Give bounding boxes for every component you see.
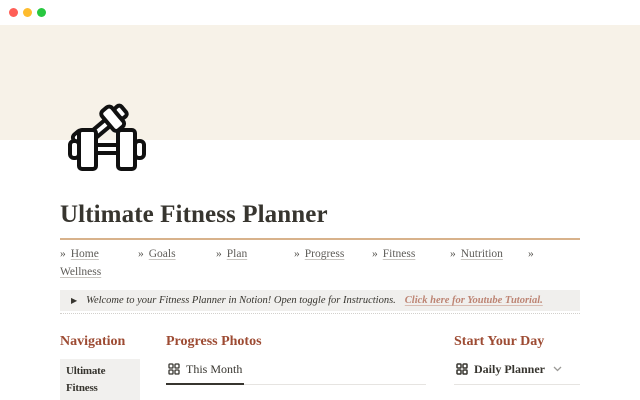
- chevron-right-icon: »: [138, 245, 144, 263]
- view-daily-planner[interactable]: Daily Planner: [454, 359, 564, 384]
- start-your-day-column: Start Your Day Daily Planner: [454, 334, 580, 400]
- progress-photos-heading: Progress Photos: [166, 334, 426, 351]
- minimize-window-button[interactable]: [23, 8, 32, 17]
- nav-link-progress[interactable]: Progress: [305, 245, 345, 263]
- page-title: Ultimate Fitness Planner: [60, 200, 580, 230]
- sidebar-item-ultimate-fitness-planner[interactable]: Ultimate Fitness Planner: [60, 359, 140, 400]
- bottom-columns: Navigation Ultimate Fitness Planner Prog…: [60, 334, 580, 400]
- close-window-button[interactable]: [9, 8, 18, 17]
- nav-item-fitness: » Fitness: [372, 245, 450, 263]
- welcome-callout-wrap: ▶ Welcome to your Fitness Planner in Not…: [60, 290, 580, 314]
- nav-item-goals: » Goals: [138, 245, 216, 263]
- chevron-right-icon: »: [450, 245, 456, 263]
- welcome-text: Welcome to your Fitness Planner in Notio…: [86, 295, 396, 306]
- nav-item-progress: » Progress: [294, 245, 372, 263]
- nav-item-plan: » Plan: [216, 245, 294, 263]
- section-nav: » Home » Goals » Plan » Progress » Fitne…: [60, 245, 580, 281]
- start-your-day-heading: Start Your Day: [454, 334, 580, 351]
- view-daily-planner-label: Daily Planner: [474, 362, 545, 377]
- chevron-right-icon: »: [528, 245, 534, 263]
- nav-link-goals[interactable]: Goals: [149, 245, 176, 263]
- nav-item-home: » Home: [60, 245, 138, 263]
- navigation-heading: Navigation: [60, 334, 140, 351]
- progress-photos-column: Progress Photos This Month: [166, 334, 426, 400]
- chevron-right-icon: »: [216, 245, 222, 263]
- chevron-right-icon: »: [372, 245, 378, 263]
- nav-link-wellness[interactable]: Wellness: [60, 266, 101, 278]
- window-titlebar: [0, 0, 640, 25]
- gallery-view-icon: [168, 363, 180, 375]
- navigation-column: Navigation Ultimate Fitness Planner: [60, 334, 140, 400]
- tab-this-month[interactable]: This Month: [166, 359, 244, 385]
- nav-link-home[interactable]: Home: [71, 245, 99, 263]
- welcome-toggle-callout: ▶ Welcome to your Fitness Planner in Not…: [60, 290, 580, 311]
- youtube-tutorial-link[interactable]: Click here for Youtube Tutorial.: [405, 295, 543, 306]
- tab-this-month-label: This Month: [186, 362, 242, 377]
- nav-link-nutrition[interactable]: Nutrition: [461, 245, 503, 263]
- dumbbells-page-icon[interactable]: [62, 86, 152, 174]
- title-divider: [60, 238, 580, 240]
- chevron-right-icon: »: [294, 245, 300, 263]
- nav-link-plan[interactable]: Plan: [227, 245, 247, 263]
- nav-link-fitness[interactable]: Fitness: [383, 245, 416, 263]
- zoom-window-button[interactable]: [37, 8, 46, 17]
- chevron-right-icon: »: [60, 245, 66, 263]
- chevron-down-icon[interactable]: [553, 366, 562, 372]
- gallery-view-icon: [456, 363, 468, 375]
- page-content: Ultimate Fitness Planner » Home » Goals …: [60, 200, 580, 400]
- daily-planner-viewbar: Daily Planner: [454, 359, 580, 385]
- toggle-triangle-icon[interactable]: ▶: [71, 296, 77, 305]
- progress-photos-tabbar: This Month: [166, 359, 426, 385]
- nav-item-nutrition: » Nutrition: [450, 245, 528, 263]
